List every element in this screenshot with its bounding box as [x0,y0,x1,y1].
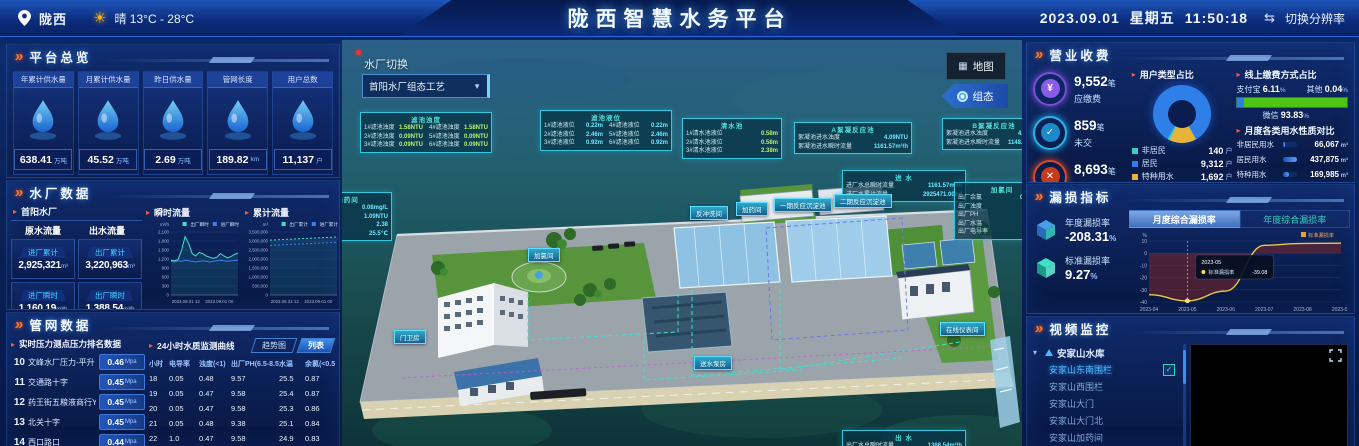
pressure-row[interactable]: 13北关十字0.45Mpa [11,412,145,432]
billing-status-label: 未交 [1074,136,1105,149]
standard-leak-rate: 标准漏损率 9.27% [1033,254,1129,282]
video-player[interactable] [1190,344,1348,446]
count-number: 9,552 [1074,74,1108,89]
tab-list[interactable]: 列表 [297,338,336,353]
scene-panel-rows: 絮凝池进水浊度4.09NTU絮凝池进水瞬时流量1161.57m³/h [798,134,908,151]
user-type-legend-item: 特种用水1,692户 [1132,171,1233,182]
pressure-point-name: 文峰水厂压力-平升 [28,357,96,368]
section-decoration [105,59,329,62]
scene-panel-row: 1#滤池液位0.22m [544,122,603,131]
scene-panel-label: 絮凝池进水浊度 [946,130,988,139]
billing-count: 8,693笔 [1074,161,1116,179]
plant-stat-box: 出厂累计3,220,963m³ [78,239,142,279]
scene-panel-label: 1#滤池浊度 [364,124,395,133]
building-tag: 二期反应沉淀池 [834,194,892,208]
usage-value: 169,985 m³ [1300,170,1348,179]
overview-card-label: 月累计供水量 [79,72,138,88]
quality-header-cell: 浊度(<1) [199,359,231,369]
usage-bar-track [1283,157,1297,162]
camera-name: 安家山加药间 [1049,431,1103,444]
scene-panel-row: 水温25.5℃ [342,230,388,239]
payment-title: ▸线上缴费方式占比 [1236,68,1348,81]
scene-panel-rows: 1#滤池液位0.22m2#滤池液位2.46m3#滤池液位0.92m4#滤池液位0… [544,122,668,148]
building-tag: 在线仪表间 [940,322,985,336]
scene-panel-value: 0.09NTU [464,133,488,142]
cube-icon [1033,256,1059,280]
quality-cell: 22 [149,434,169,443]
value-number: 2.69 [155,154,175,166]
svg-text:m³: m³ [263,222,269,227]
config-button[interactable]: 组态 [942,84,1008,108]
user-type-legend-item: 非居民140户 [1132,145,1233,156]
scene-panel-label: 出厂电导率 [958,228,988,237]
quality-cell: 0.48 [199,419,231,428]
svg-text:10: 10 [1141,239,1147,245]
pressure-value: 0.44 [107,437,124,446]
billing-stat: ✕8,693笔已交 [1033,156,1128,183]
quality-header-cell: 出厂PH(6.5-8.5) [231,359,279,369]
scene-panel-title: 滤池液位 [544,112,668,122]
billing-count: 859笔 [1074,117,1105,135]
legend-unit: 户 [1225,146,1232,156]
quality-cell: 0.05 [169,419,199,428]
billing-glyph-icon: ¥ [1041,79,1060,98]
scene-panel-label: 3#清水池液位 [686,147,723,156]
overview-card-label: 昨日供水量 [144,72,203,88]
quality-cell: 20 [149,404,169,413]
pressure-point-name: 北关十字 [28,417,96,428]
scene-panel-row: 出厂水总瞬时流量1388.54m³/h [846,442,962,446]
plant-stat-value: 1,388.54m³/h [86,303,135,310]
value-unit: km [251,156,260,163]
overview-card-label: 管网长度 [208,72,267,88]
raw-water-column-header: 原水流量 [11,224,75,237]
scene-panel-value: 1.58NTU [399,124,423,133]
scene-panel-row: 1#清水池液位0.58m [686,130,778,139]
water-drop-icon [26,88,60,149]
usage-value: 437,875 m³ [1300,155,1348,164]
pressure-value-chip: 0.45Mpa [99,374,145,390]
scene-panel-value: 1148.30m³/h [1008,139,1022,148]
billing-stat-text: 9,552笔应缴费 [1074,73,1116,105]
svg-text:2,500,000: 2,500,000 [248,248,268,253]
video-monitor-panel: » 视频监控 ▾安家山水库安家山东南围栏✓安家山西围栏安家山大门安家山大门北安家… [1026,316,1355,446]
section-title: 漏损指标 [1049,187,1111,206]
section-arrow-icon: » [1034,46,1045,63]
value-unit: 户 [316,155,323,165]
video-tree-item[interactable]: 安家山大门北 [1033,412,1179,429]
overview-card-value: 2.69万吨 [144,149,202,170]
quality-cell: 0.05 [169,389,199,398]
svg-text:2023-04: 2023-04 [1140,307,1159,313]
legend-swatch [1132,174,1138,180]
quality-header-cell: 小时 [149,359,169,369]
quality-cell: 25.4 [279,389,305,398]
monthly-usage-row: 特种用水169,985 m³ [1236,167,1348,182]
quality-cell: 9.58 [231,404,279,413]
switch-resolution-button[interactable]: 切换分辨率 [1285,10,1345,27]
overview-card-value: 189.82km [209,149,267,170]
date-label: 2023.09.01 [1040,10,1120,26]
scene-panel-row: 絮凝池进水浊度4.09NTU [798,134,908,143]
scene-panel-rows: 出厂余氯0.08mg/L出厂浊度1.09NTU出厂PH2.38水温25.5℃ [342,204,388,238]
quality-cell: 18 [149,374,169,383]
svg-text:900: 900 [162,266,170,271]
plant-stat-unit: m³ [61,264,68,270]
scene-panel-title: B絮凝反应池 [946,120,1022,130]
scene-panel-value: 1.58NTU [464,124,488,133]
chevron-down-icon: ▼ [473,82,481,91]
scene-panel-row: 5#滤池液位2.46m [609,131,668,140]
billing-status-label: 已交 [1074,180,1116,184]
scene-panel-row: 4#滤池液位0.22m [609,122,668,131]
pressure-value-chip: 0.45Mpa [99,414,145,430]
bullet-arrow-icon: ▸ [1132,70,1136,79]
scene-panel-label: 絮凝池进水瞬时流量 [946,139,1000,148]
svg-text:-20: -20 [1140,276,1147,282]
pressure-row[interactable]: 12药王街五粮液商行YT0.45Mpa [11,392,145,412]
scene-data-panel: 滤池浊度1#滤池浊度1.58NTU2#滤池浊度0.09NTU3#滤池浊度0.09… [360,112,492,153]
svg-text:-30: -30 [1140,288,1147,294]
video-tree-item[interactable]: 安家山东南围栏✓ [1033,361,1179,378]
svg-text:-39.08: -39.08 [1252,270,1267,276]
svg-text:进厂瞬时: 进厂瞬时 [221,221,240,228]
scene-data-panel: B絮凝反应池絮凝池进水浊度4.09NTU絮凝池进水瞬时流量1148.30m³/h [942,118,1022,150]
billing-stat: ✓859笔未交 [1033,112,1128,153]
quality-row: 221.00.479.5824.90.83 [149,431,335,446]
scene-panel-rows: 1#清水池液位0.58m2#清水池液位0.58m3#清水池液位2.38m [686,130,778,156]
usage-bar-fill [1283,157,1297,162]
scene-panel-label: 3#滤池液位 [544,139,575,148]
pressure-point-name: 交通路十字 [28,377,96,388]
leak-rate-chart: %标准漏损率100-10-20-30-402023-042023-052023-… [1129,229,1347,313]
scene-panel-value: 1.09NTU [364,213,388,222]
scene-panel-label: 2#滤池液位 [544,131,575,140]
billing-stat-icon: ¥ [1033,72,1067,106]
user-type-legend-item: 居民9,312户 [1132,158,1233,169]
legend-swatch [1132,148,1138,154]
quality-cell: 21 [149,419,169,428]
billing-status-label: 应缴费 [1074,92,1116,105]
svg-text:出厂累计: 出厂累计 [289,221,308,228]
scene-panel-row: 出厂PH9.57 [958,211,1022,220]
building-tag: 送水泵房 [694,356,732,370]
overview-card: 年累计供水量638.41万吨 [13,71,74,175]
scene-panel-row: 进厂水总瞬时流量1161.57m³/h [846,182,962,191]
scene-panel-value: 0.92m [651,139,668,148]
instant-flow-chart: m³/h进厂瞬时出厂瞬时2,1001,8001,5001,20090060030… [144,219,241,305]
quality-cell: 0.47 [199,404,231,413]
scene-panel-value: 0.08mg/L [1020,194,1022,203]
overview-card-label: 用户总数 [273,72,332,88]
scene-panel-row: 出厂浊度1.09NTU [342,213,388,222]
tab-trend-chart[interactable]: 趋势图 [251,338,298,353]
video-tree-item[interactable]: 安家山大门 [1033,395,1179,412]
pressure-rank: 13 [11,417,25,428]
camera-name: 安家山西围栏 [1049,380,1103,393]
tab-annual-leak-rate[interactable]: 年度综合漏损率 [1240,210,1351,228]
section-title: 管网数据 [29,315,91,334]
scene-panel-title: 加氯加药间 [342,194,388,204]
quality-cell: 9.38 [231,419,279,428]
map-button[interactable]: ▦地图 [946,52,1006,80]
legend-value: 9,312 [1201,159,1224,169]
scene-panel-row: 3#滤池液位0.92m [544,139,603,148]
scene-panel-value: 0.08mg/L [362,204,388,213]
alipay-bar-segment [1237,98,1244,107]
svg-text:-40: -40 [1140,300,1147,306]
overview-card: 昨日供水量2.69万吨 [143,71,204,175]
plant-name[interactable]: ▸首阳水厂 [11,204,142,221]
svg-text:2,000,000: 2,000,000 [248,257,268,262]
legend-label: 特种用水 [1142,171,1174,182]
bullet-arrow-icon: ▸ [1236,70,1240,79]
billing-stat: ¥9,552笔应缴费 [1033,68,1128,109]
quality-cell: 19 [149,389,169,398]
location-label[interactable]: 陇西 [39,9,67,28]
scene-panel-label: 3#滤池浊度 [364,141,395,150]
quality-row: 210.050.489.3825.10.84 [149,416,335,431]
section-arrow-icon: » [14,48,25,65]
scene-panel-label: 1#滤池液位 [544,122,575,131]
overview-card-value: 45.52万吨 [79,149,137,170]
pressure-value: 0.45 [107,397,124,407]
scene-panel-label: 4#滤池液位 [609,122,640,131]
svg-text:1,200: 1,200 [158,257,170,262]
scene-panel-value: 0.58m [761,130,778,139]
svg-text:标准漏损率: 标准漏损率 [1208,268,1234,276]
scene-panel-label: 2#清水池液位 [686,139,723,148]
scene-panel-value: 2.38 [376,221,388,230]
quality-cell: 0.47 [199,434,231,443]
camera-name: 安家山大门北 [1049,414,1103,427]
svg-text:-10: -10 [1140,263,1147,269]
plant-stat-box: 出厂瞬时1,388.54m³/h [78,282,142,310]
quality-cell: 0.83 [305,434,335,443]
pressure-value: 0.45 [107,377,124,387]
weekday-label: 星期五 [1130,8,1175,28]
overview-card: 月累计供水量45.52万吨 [78,71,139,175]
camera-checkbox[interactable]: ✓ [1163,364,1175,376]
quality-cell: 0.47 [199,389,231,398]
plant-3d-viewport[interactable]: 水厂切换 首阳水厂组态工艺▼ ▦地图 组态 滤池浊度1#滤池浊度1.58NTU2… [342,40,1022,446]
pressure-value: 0.46 [107,357,124,367]
page-title: 陇西智慧水务平台 [568,3,792,33]
other-share: 其他 0.04% [1306,84,1348,95]
pressure-rank: 10 [11,357,25,368]
legend-value: 1,692 [1201,172,1224,182]
scene-panel-value: 1161.57m³/h [874,143,908,152]
quality-cell: 25.3 [279,404,305,413]
quality-cell: 9.57 [231,374,279,383]
svg-text:1,500,000: 1,500,000 [248,266,268,271]
pipeline-icon [221,88,255,149]
instant-flow-chart-title: ▸瞬时流量 [146,206,241,219]
title-banner: 陇西智慧水务平台 [400,0,960,36]
scene-panel-title: A絮凝反应池 [798,124,908,134]
scene-panel-value: 4.09NTU [1018,130,1022,139]
scene-panel-row: 出厂水温25.5℃ [958,220,1022,229]
scene-panel-value: 25.5℃ [369,230,388,239]
dashboard: 陇西 ☀ 晴 13°C - 28°C 陇西智慧水务平台 2023.09.01 星… [0,0,1359,446]
quality-cell: 9.58 [231,389,279,398]
svg-text:1,500: 1,500 [158,248,170,253]
pressure-row[interactable]: 10文峰水厂压力-平升0.46Mpa [11,352,145,372]
legend-label: 非居民 [1142,145,1166,156]
bullet-arrow-icon: ▸ [11,340,15,349]
svg-text:500,000: 500,000 [252,284,268,289]
svg-text:2023-05: 2023-05 [1201,260,1221,266]
scene-panel-value: 0.09NTU [399,141,423,150]
scene-data-panel: 滤池液位1#滤池液位0.22m2#滤池液位2.46m3#滤池液位0.92m4#滤… [540,110,672,151]
scene-panel-row: 1#滤池浊度1.58NTU [364,124,423,133]
scene-panel-label: 2#滤池浊度 [364,133,395,142]
quality-header-cell: 水温 [279,359,305,369]
cumulative-flow-chart: m³进厂累计出厂累计3,500,0003,000,0002,500,0002,0… [243,219,340,305]
scene-panel-row: 2#清水池液位0.58m [686,139,778,148]
scene-panel-value: 0.92m [586,139,603,148]
pressure-unit: Mpa [125,359,137,365]
bullet-arrow-icon: ▸ [13,207,17,216]
quality-header-row: 小时电导率浊度(<1)出厂PH(6.5-8.5)水温余氯(<0.5) [149,356,335,371]
scene-panel-row: 出厂PH2.38 [342,221,388,230]
scene-panel-row: 絮凝池进水瞬时流量1161.57m³/h [798,143,908,152]
scene-panel-row: 絮凝池进水瞬时流量1148.30m³/h [946,139,1022,148]
scene-panel-title: 加氯间 [958,184,1022,194]
scene-panel-row: 出厂余氯0.08mg/L [342,204,388,213]
svg-text:2023-08: 2023-08 [1293,307,1312,313]
plant-stat-box: 进厂瞬时1,160.19m³/h [11,282,75,310]
usage-label: 居民用水 [1236,154,1280,165]
quality-cell: 0.86 [305,404,335,413]
scene-panel-value: 2.46m [586,131,603,140]
wechat-share: 微信 93.83% [1262,110,1348,121]
scene-panel-row: 3#清水池液位2.38m [686,147,778,156]
map-icon: ▦ [958,61,967,72]
tab-monthly-leak-rate[interactable]: 月度综合漏损率 [1129,210,1240,228]
users-icon [286,88,320,149]
section-decoration [105,195,329,198]
billing-stat-icon: ✕ [1033,160,1067,184]
tree-scrollbar[interactable] [1183,344,1186,446]
cumulative-flow-chart-title: ▸累计流量 [245,206,340,219]
svg-text:2023.08.31 12: 2023.08.31 12 [271,299,300,304]
quality-cell: 0.87 [305,389,335,398]
video-tree-item[interactable]: 安家山加药间 [1033,429,1179,446]
count-unit: 笔 [1108,79,1116,88]
video-tree-item[interactable]: 安家山西围栏 [1033,378,1179,395]
payment-stacked-bar [1236,97,1348,108]
tree-caret-icon: ▾ [1033,348,1041,357]
svg-text:2,100: 2,100 [158,230,170,235]
time-label: 11:50:18 [1185,10,1248,26]
overview-card-value: 638.41万吨 [14,149,72,170]
svg-text:3,500,000: 3,500,000 [248,230,268,235]
scene-panel-label: 5#滤池浊度 [429,133,460,142]
pressure-rank: 11 [11,377,25,388]
billing-count: 9,552笔 [1074,73,1116,91]
scene-panel-rows: 出厂余氯0.08mg/L出厂浊度1.09NTU出厂PH9.57出厂水温25.5℃… [958,194,1022,237]
svg-text:2023-07: 2023-07 [1255,307,1274,313]
scene-panel-title: 滤池浊度 [364,114,488,124]
count-unit: 笔 [1108,167,1116,176]
leakage-panel: » 漏损指标 年度漏损率 -208.31% [1026,184,1355,314]
billing-stat-icon: ✓ [1033,116,1067,150]
billing-glyph-icon: ✕ [1041,167,1060,183]
value-unit: 万吨 [178,155,191,165]
scene-panel-value: 2.38m [761,147,778,156]
value-number: 11,137 [283,154,315,166]
annual-leak-rate: 年度漏损率 -208.31% [1033,216,1129,244]
scene-panel-label: 出厂水总瞬时流量 [846,442,894,446]
plant-switch-label: 水厂切换 [364,56,408,72]
pressure-row[interactable]: 11交通路十字0.45Mpa [11,372,145,392]
plant-stat-value: 3,220,963m³ [85,260,134,271]
scene-data-panel: A絮凝反应池絮凝池进水浊度4.09NTU絮凝池进水瞬时流量1161.57m³/h [794,122,912,154]
scene-panel-label: 4#滤池浊度 [429,124,460,133]
pressure-unit: Mpa [125,439,137,445]
scene-panel-row: 絮凝池进水浊度4.09NTU [946,130,1022,139]
quality-row: 180.050.489.5725.50.87 [149,371,335,386]
svg-text:0: 0 [1144,251,1147,257]
fullscreen-icon[interactable] [1329,349,1342,362]
video-tree-item[interactable]: ▾安家山水库 [1033,344,1179,361]
value-unit: 万吨 [54,155,67,165]
quality-cell: 0.05 [169,404,199,413]
legend-unit: 户 [1225,159,1232,169]
billing-glyph-icon: ✓ [1041,123,1060,142]
pressure-point-name: 西口路口 [28,437,96,446]
sun-icon: ☀ [93,9,106,27]
quality-cell: 1.0 [169,434,199,443]
water-quality-title: ▸24小时水质监测曲线 [149,340,234,352]
location-pin-icon [18,10,31,26]
cube-icon [1033,218,1059,242]
scene-panel-value: 1388.54m³/h [928,442,962,446]
usage-bar-fill [1283,142,1285,147]
alert-dot [356,50,361,55]
scene-panel-row: 2#滤池液位2.46m [544,131,603,140]
pressure-value-chip: 0.46Mpa [99,354,145,370]
plant-switch-dropdown[interactable]: 首阳水厂组态工艺▼ [362,74,490,98]
svg-text:2023-06: 2023-06 [1217,307,1236,313]
scene-data-panel: 加氯加药间出厂余氯0.08mg/L出厂浊度1.09NTU出厂PH2.38水温25… [342,192,392,241]
scene-panel-label: 进厂水总瞬时流量 [846,182,894,191]
pressure-point-name: 药王街五粮液商行YT [28,397,96,408]
quality-row: 200.050.479.5825.30.86 [149,401,335,416]
scene-data-panel: 加氯间出厂余氯0.08mg/L出厂浊度1.09NTU出厂PH9.57出厂水温25… [954,182,1022,240]
plant-stat-unit: m³/h [123,307,134,310]
monthly-usage-row: 非居民用水66,067 m³ [1236,137,1348,152]
building-tag: 反冲洗间 [690,206,728,220]
plant-stat-label: 进厂瞬时 [20,290,66,301]
scene-panel-label: 6#滤池液位 [609,139,640,148]
scene-panel-title: 清水池 [686,120,778,130]
pressure-row[interactable]: 14西口路口0.44Mpa [11,432,145,446]
scene-panel-label: 出厂PH [958,211,978,220]
section-title: 视频监控 [1049,319,1111,338]
usage-label: 特种用水 [1236,169,1280,180]
section-arrow-icon: » [14,184,25,201]
pressure-ranking-title: ▸实时压力测点压力排名数据 [11,338,145,350]
section-title: 水厂数据 [29,183,91,202]
scene-panel-label: 出厂浊度 [958,203,982,212]
svg-text:2023-09: 2023-09 [1332,307,1347,313]
svg-text:进厂累计: 进厂累计 [320,221,339,228]
camera-group-icon [1045,349,1053,356]
quality-cell: 25.5 [279,374,305,383]
section-arrow-icon: » [14,316,25,333]
